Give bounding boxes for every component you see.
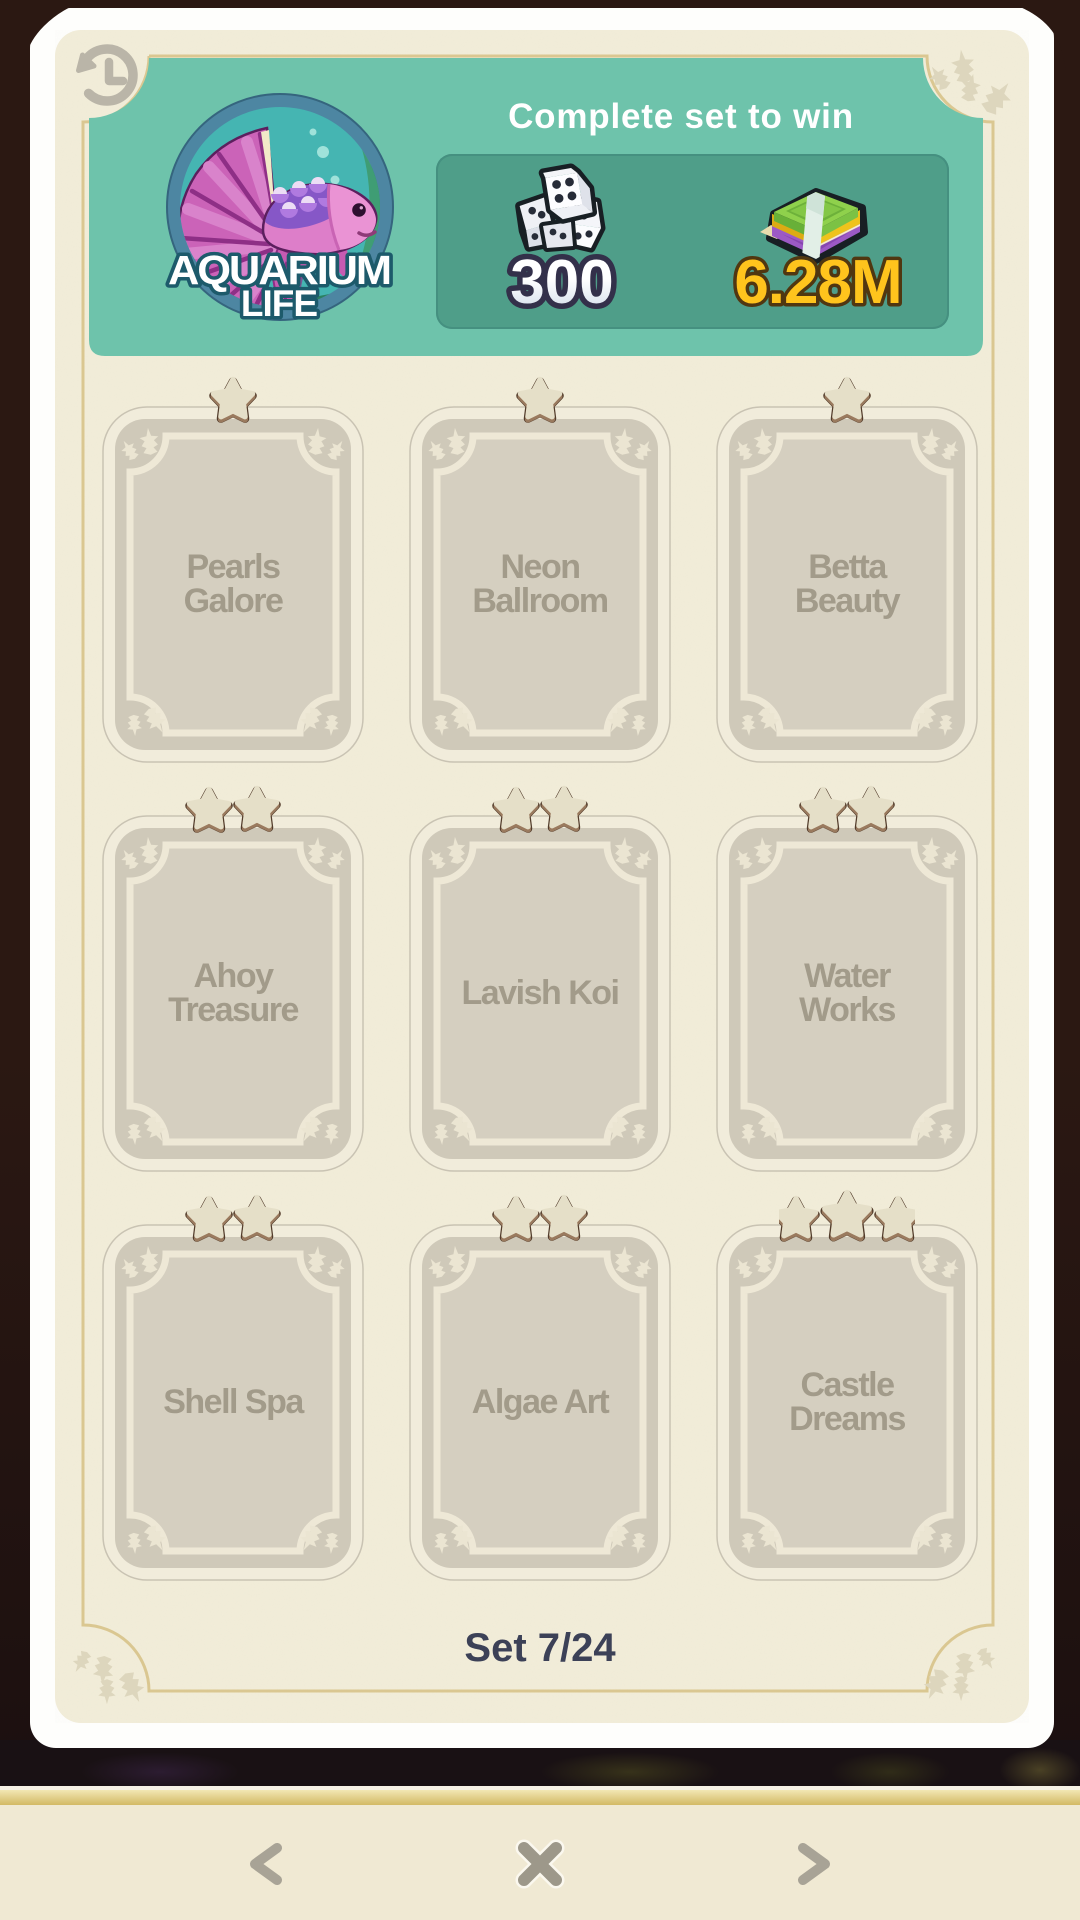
svg-text:6.28M: 6.28M [734, 248, 901, 317]
svg-text:LIFE: LIFE [241, 283, 317, 324]
svg-text:300: 300 [510, 248, 613, 317]
